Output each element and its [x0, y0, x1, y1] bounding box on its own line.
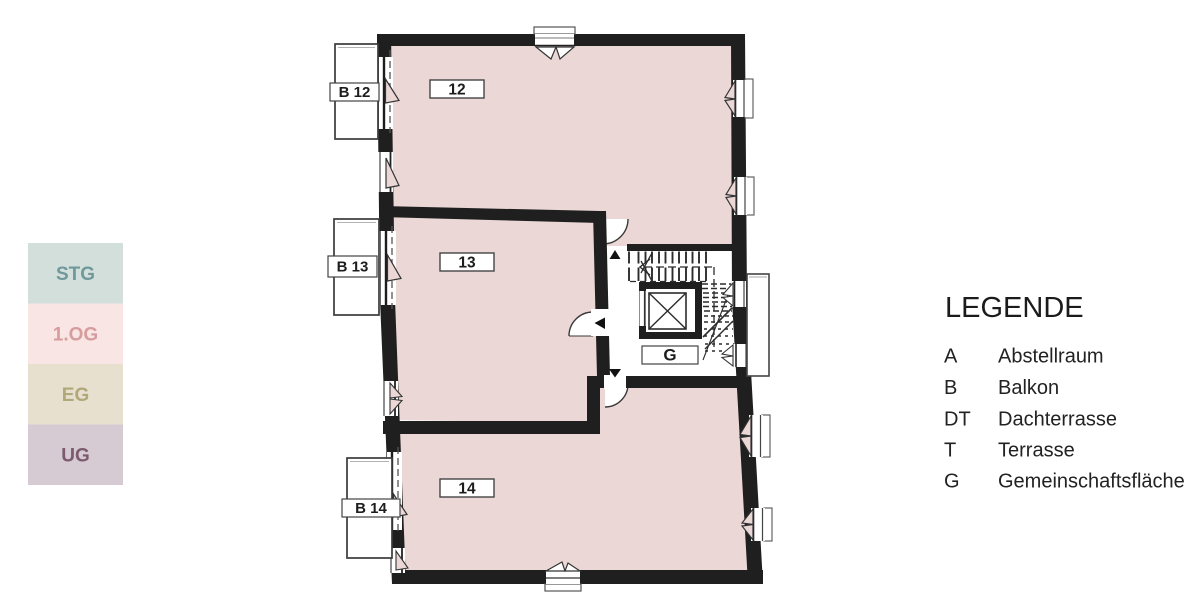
svg-text:13: 13 [458, 255, 476, 272]
svg-text:B 14: B 14 [355, 500, 387, 517]
svg-text:UG: UG [61, 446, 90, 467]
svg-text:B 12: B 12 [339, 84, 371, 101]
svg-text:T: T [944, 440, 956, 462]
svg-text:DT: DT [944, 409, 971, 431]
svg-text:LEGENDE: LEGENDE [945, 292, 1084, 324]
svg-text:Balkon: Balkon [998, 377, 1059, 399]
svg-text:14: 14 [458, 481, 476, 498]
svg-text:EG: EG [62, 385, 89, 406]
svg-text:Gemeinschaftsfläche: Gemeinschaftsfläche [998, 471, 1185, 493]
svg-text:1.OG: 1.OG [53, 325, 98, 346]
svg-text:Abstellraum: Abstellraum [998, 346, 1104, 368]
svg-text:B: B [944, 377, 957, 399]
svg-text:G: G [944, 471, 960, 493]
svg-text:12: 12 [448, 82, 465, 99]
svg-text:G: G [663, 346, 676, 365]
svg-text:Dachterrasse: Dachterrasse [998, 409, 1117, 431]
svg-text:B 13: B 13 [337, 259, 369, 276]
svg-text:STG: STG [56, 264, 95, 285]
svg-text:A: A [944, 346, 958, 368]
svg-text:Terrasse: Terrasse [998, 440, 1075, 462]
